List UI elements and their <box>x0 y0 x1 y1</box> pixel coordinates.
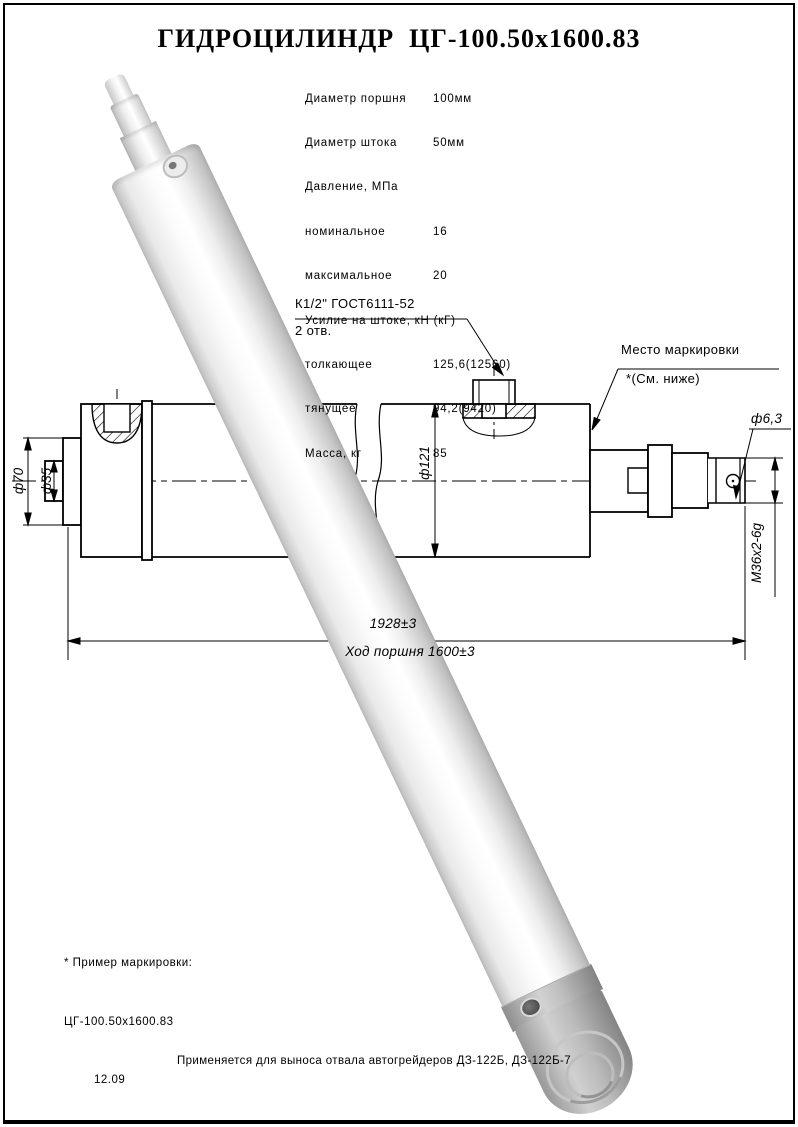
dim-label-f70: ф70 <box>11 446 27 516</box>
spec-row: Диаметр поршня100мм <box>305 92 511 107</box>
spec-value: 50мм <box>433 136 465 151</box>
application-note: Применяется для выноса отвала автогрейде… <box>40 1055 708 1067</box>
spec-label: Давление, МПа <box>305 180 433 195</box>
spec-table: Диаметр поршня100мм Диаметр штока50мм Да… <box>305 62 511 491</box>
spec-row: тянущее94,2(9420) <box>305 402 511 417</box>
dim-label-stroke: Ход поршня 1600±3 <box>310 644 510 659</box>
spec-value: 94,2(9420) <box>433 402 497 417</box>
spec-value: 85 <box>433 447 447 462</box>
callout-port-line2: 2 отв. <box>295 323 332 338</box>
drawing-title: ГИДРОЦИЛИНДР ЦГ-100.50х1600.83 <box>0 24 798 54</box>
spec-row: Диаметр штока50мм <box>305 136 511 151</box>
spec-value: 125,6(12560) <box>433 358 511 373</box>
spec-label: толкающее <box>305 358 433 373</box>
spec-label: максимальное <box>305 269 433 284</box>
spec-row: Давление, МПа <box>305 180 511 195</box>
spec-row: номинальное16 <box>305 225 511 240</box>
marking-note: * Пример маркировки: ЦГ-100.50х1600.83 1… <box>64 915 192 1127</box>
spec-row: максимальное20 <box>305 269 511 284</box>
spec-value: 100мм <box>433 92 472 107</box>
marking-note-line3: 12.09 <box>64 1071 192 1091</box>
rod-end-right <box>590 445 745 517</box>
callout-marking-line1: Место маркировки <box>621 342 739 357</box>
marking-note-line2: ЦГ-100.50х1600.83 <box>64 1013 192 1033</box>
drawing-sheet: ГИДРОЦИЛИНДР ЦГ-100.50х1600.83 Диаметр п… <box>0 0 798 1127</box>
dim-label-overall: 1928±3 <box>343 616 443 631</box>
spec-row: Усилие на штоке, кН (кГ) <box>305 314 511 329</box>
spec-label: тянущее <box>305 402 433 417</box>
dim-label-m36: М36х2-6g <box>749 518 765 588</box>
marking-note-line1: * Пример маркировки: <box>64 954 192 974</box>
callout-marking-line2: *(См. ниже) <box>626 371 700 386</box>
spec-label: Диаметр поршня <box>305 92 433 107</box>
dim-label-f35: ф35 <box>39 446 55 516</box>
spec-row: толкающее125,6(12560) <box>305 358 511 373</box>
spec-row: Масса, кг85 <box>305 447 511 462</box>
dim-label-f121: ф121 <box>417 428 433 498</box>
spec-label: Диаметр штока <box>305 136 433 151</box>
spec-label: номинальное <box>305 225 433 240</box>
callout-port-line1: К1/2" ГОСТ6111-52 <box>295 296 415 311</box>
spec-value: 16 <box>433 225 447 240</box>
spec-label: Масса, кг <box>305 447 433 462</box>
dim-label-hole: ф6,3 <box>751 411 782 426</box>
spec-value: 20 <box>433 269 447 284</box>
